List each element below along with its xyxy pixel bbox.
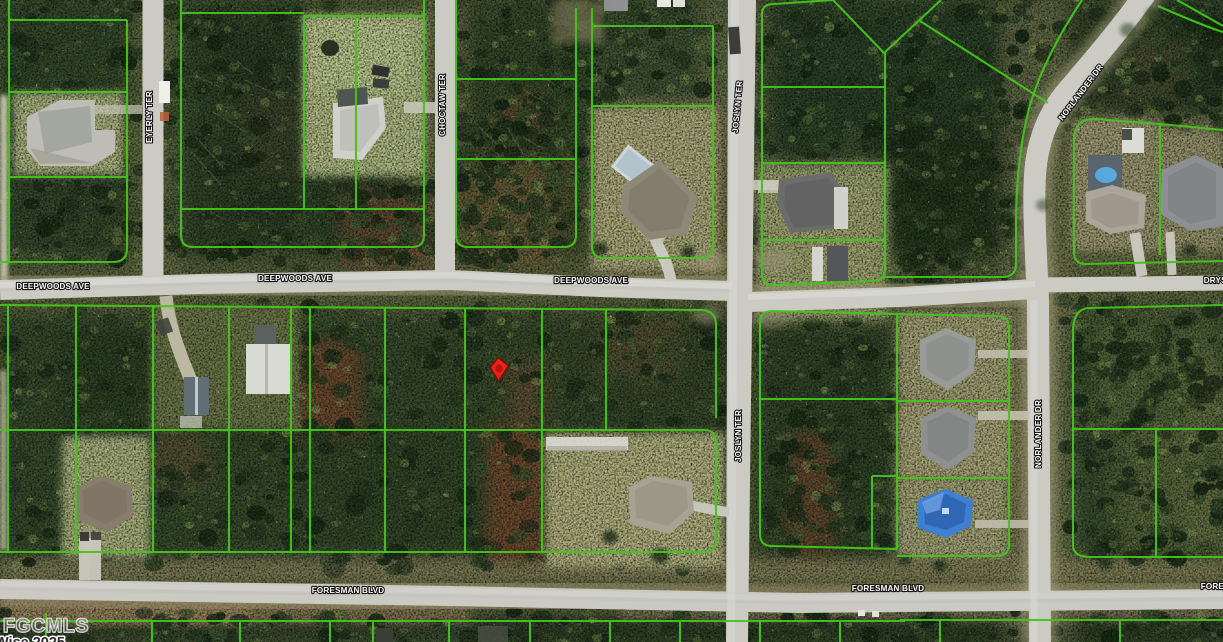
svg-text:FGCMLS: FGCMLS (3, 615, 89, 637)
svg-text:FORESMAN BLVD: FORESMAN BLVD (312, 586, 385, 595)
svg-text:JOSLYN TER: JOSLYN TER (734, 410, 743, 462)
svg-text:FORESMAN BLVD: FORESMAN BLVD (1201, 582, 1223, 591)
svg-text:DEEPWOODS AVE: DEEPWOODS AVE (554, 276, 629, 285)
svg-text:FORESMAN BLVD: FORESMAN BLVD (852, 584, 925, 593)
svg-text:EYERLY TER: EYERLY TER (145, 91, 154, 143)
svg-text:DRYSDALE AVE: DRYSDALE AVE (1204, 276, 1223, 285)
svg-text:DEEPWOODS AVE: DEEPWOODS AVE (16, 282, 90, 291)
svg-text:CHOCTAW TER: CHOCTAW TER (438, 74, 447, 136)
svg-text:NORLANDER DR: NORLANDER DR (1034, 400, 1043, 468)
svg-text:DEEPWOODS AVE: DEEPWOODS AVE (258, 274, 333, 283)
svg-text:Wise 2025: Wise 2025 (0, 635, 65, 642)
